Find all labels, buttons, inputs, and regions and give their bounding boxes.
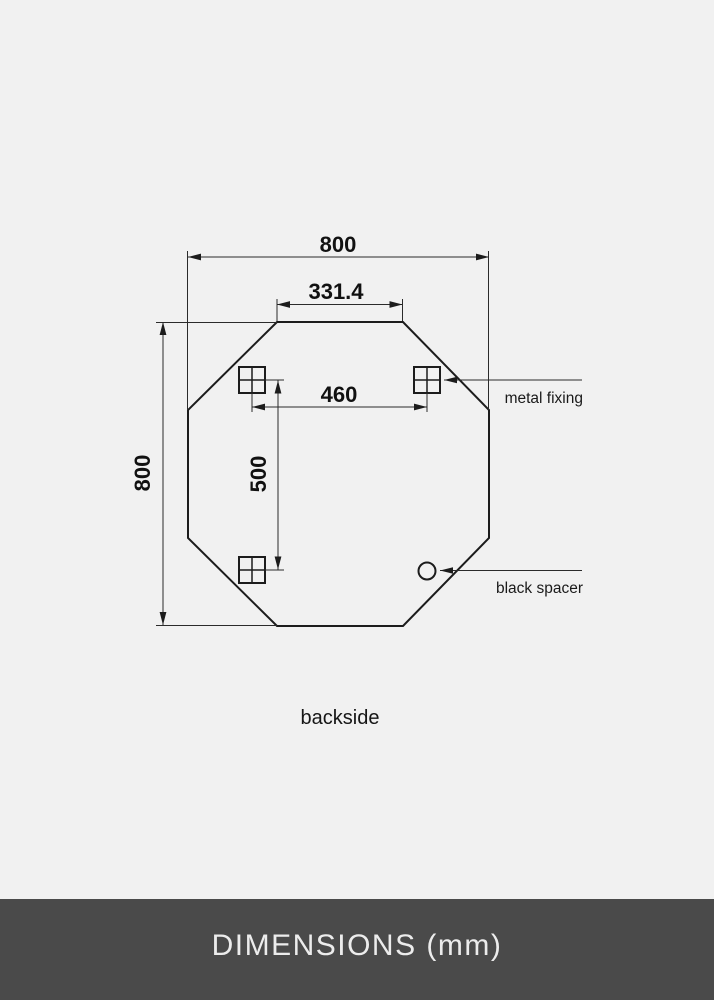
fixing-cross-icon (239, 557, 265, 583)
arrow-left-icon (277, 301, 290, 308)
arrow-up-icon (160, 322, 167, 335)
dimension-overall-height: 800 (130, 322, 166, 625)
black-spacer-icon (419, 563, 436, 580)
dimension-diagram: 800 331.4 800 460 500 (0, 0, 714, 1000)
arrow-right-icon (390, 301, 403, 308)
octagon-outline (188, 322, 489, 626)
extension-lines (156, 251, 489, 626)
callout-black-spacer: black spacer (440, 567, 583, 597)
metal-fixing-top-left (239, 367, 265, 393)
arrow-down-icon (160, 612, 167, 625)
footer-title: DIMENSIONS (mm) (212, 929, 503, 963)
view-caption: backside (301, 707, 380, 729)
dim-label-fixing-vertical: 500 (246, 456, 271, 493)
product-dimension-sheet: 800 331.4 800 460 500 (0, 0, 714, 1000)
dim-label-overall-height: 800 (130, 455, 155, 492)
arrow-left-icon (440, 567, 453, 573)
arrow-up-icon (275, 381, 282, 394)
arrow-left-icon (444, 377, 457, 383)
metal-fixing-top-right (414, 367, 440, 393)
dimension-overall-width: 800 (188, 232, 489, 260)
octagon-shape (188, 322, 489, 626)
metal-fixing-bottom-left (239, 557, 265, 583)
dimension-top-flat: 331.4 (277, 279, 403, 308)
metal-fixing-label: metal fixing (505, 390, 583, 407)
arrow-left-icon (188, 254, 201, 261)
arrow-down-icon (275, 557, 282, 570)
dim-label-overall-width: 800 (320, 232, 357, 257)
footer-bar: DIMENSIONS (mm) (0, 899, 714, 1000)
dim-label-fixing-horizontal: 460 (321, 382, 358, 407)
fixing-cross-icon (239, 367, 265, 393)
dim-label-top-flat: 331.4 (308, 279, 364, 304)
callout-metal-fixing: metal fixing (444, 377, 583, 407)
fixing-cross-icon (414, 367, 440, 393)
arrow-right-icon (414, 404, 427, 411)
arrow-left-icon (252, 404, 265, 411)
black-spacer-label: black spacer (496, 580, 583, 597)
arrow-right-icon (476, 254, 489, 261)
